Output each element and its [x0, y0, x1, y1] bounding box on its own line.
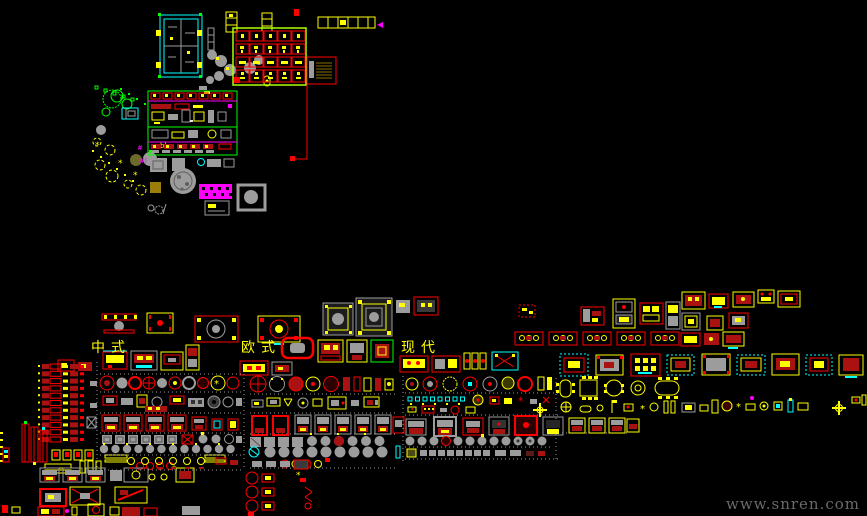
svg-text:#: #: [137, 144, 143, 152]
style-label-zhongshi: 中式: [91, 341, 131, 355]
svg-text:*: *: [640, 404, 645, 415]
svg-text:*: *: [95, 141, 100, 151]
watermark: www.snren.com: [726, 495, 860, 513]
style-label-xiandai: 现代: [401, 341, 441, 355]
svg-text:*: *: [133, 171, 138, 181]
svg-text:*: *: [296, 471, 301, 481]
svg-text:*: *: [518, 396, 523, 407]
style-label-oushi: 欧式: [241, 341, 281, 355]
svg-text:◀: ◀: [377, 20, 384, 29]
svg-text:#l: #l: [139, 157, 147, 165]
cad-viewport[interactable]: ◀***##lbl****** 中式 欧式 现代 www.snren.com: [0, 0, 867, 516]
svg-text:*: *: [214, 379, 219, 390]
cad-canvas: ◀***##lbl******: [0, 0, 867, 516]
svg-text:*: *: [736, 402, 741, 413]
svg-text:*: *: [118, 159, 123, 169]
